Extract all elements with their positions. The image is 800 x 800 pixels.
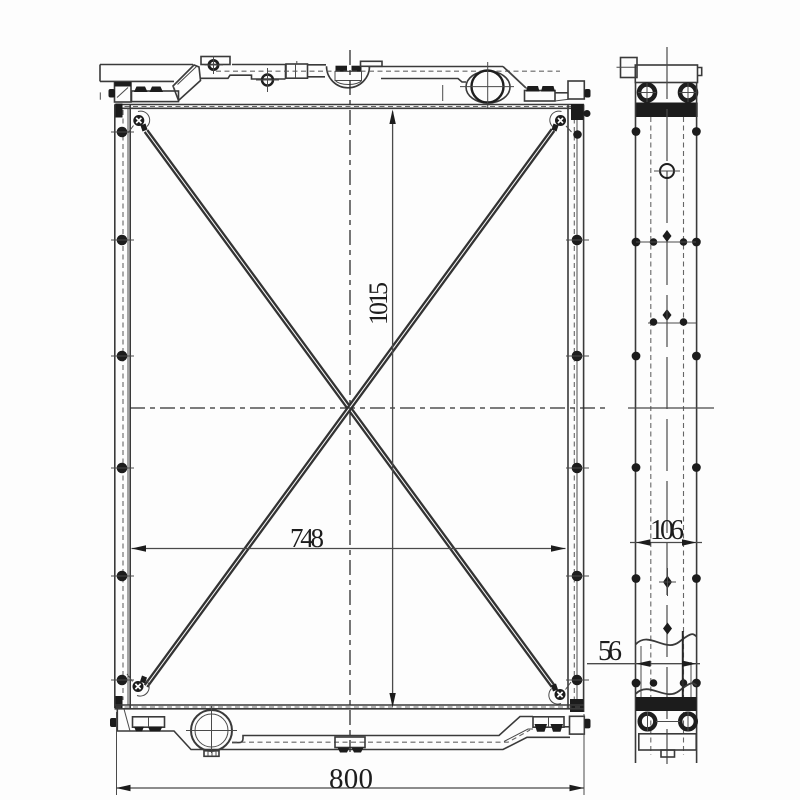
svg-text:800: 800 xyxy=(329,763,373,795)
svg-text:748: 748 xyxy=(290,523,324,553)
svg-text:56: 56 xyxy=(598,636,622,667)
svg-text:1015: 1015 xyxy=(364,282,393,325)
svg-text:106: 106 xyxy=(650,515,684,546)
